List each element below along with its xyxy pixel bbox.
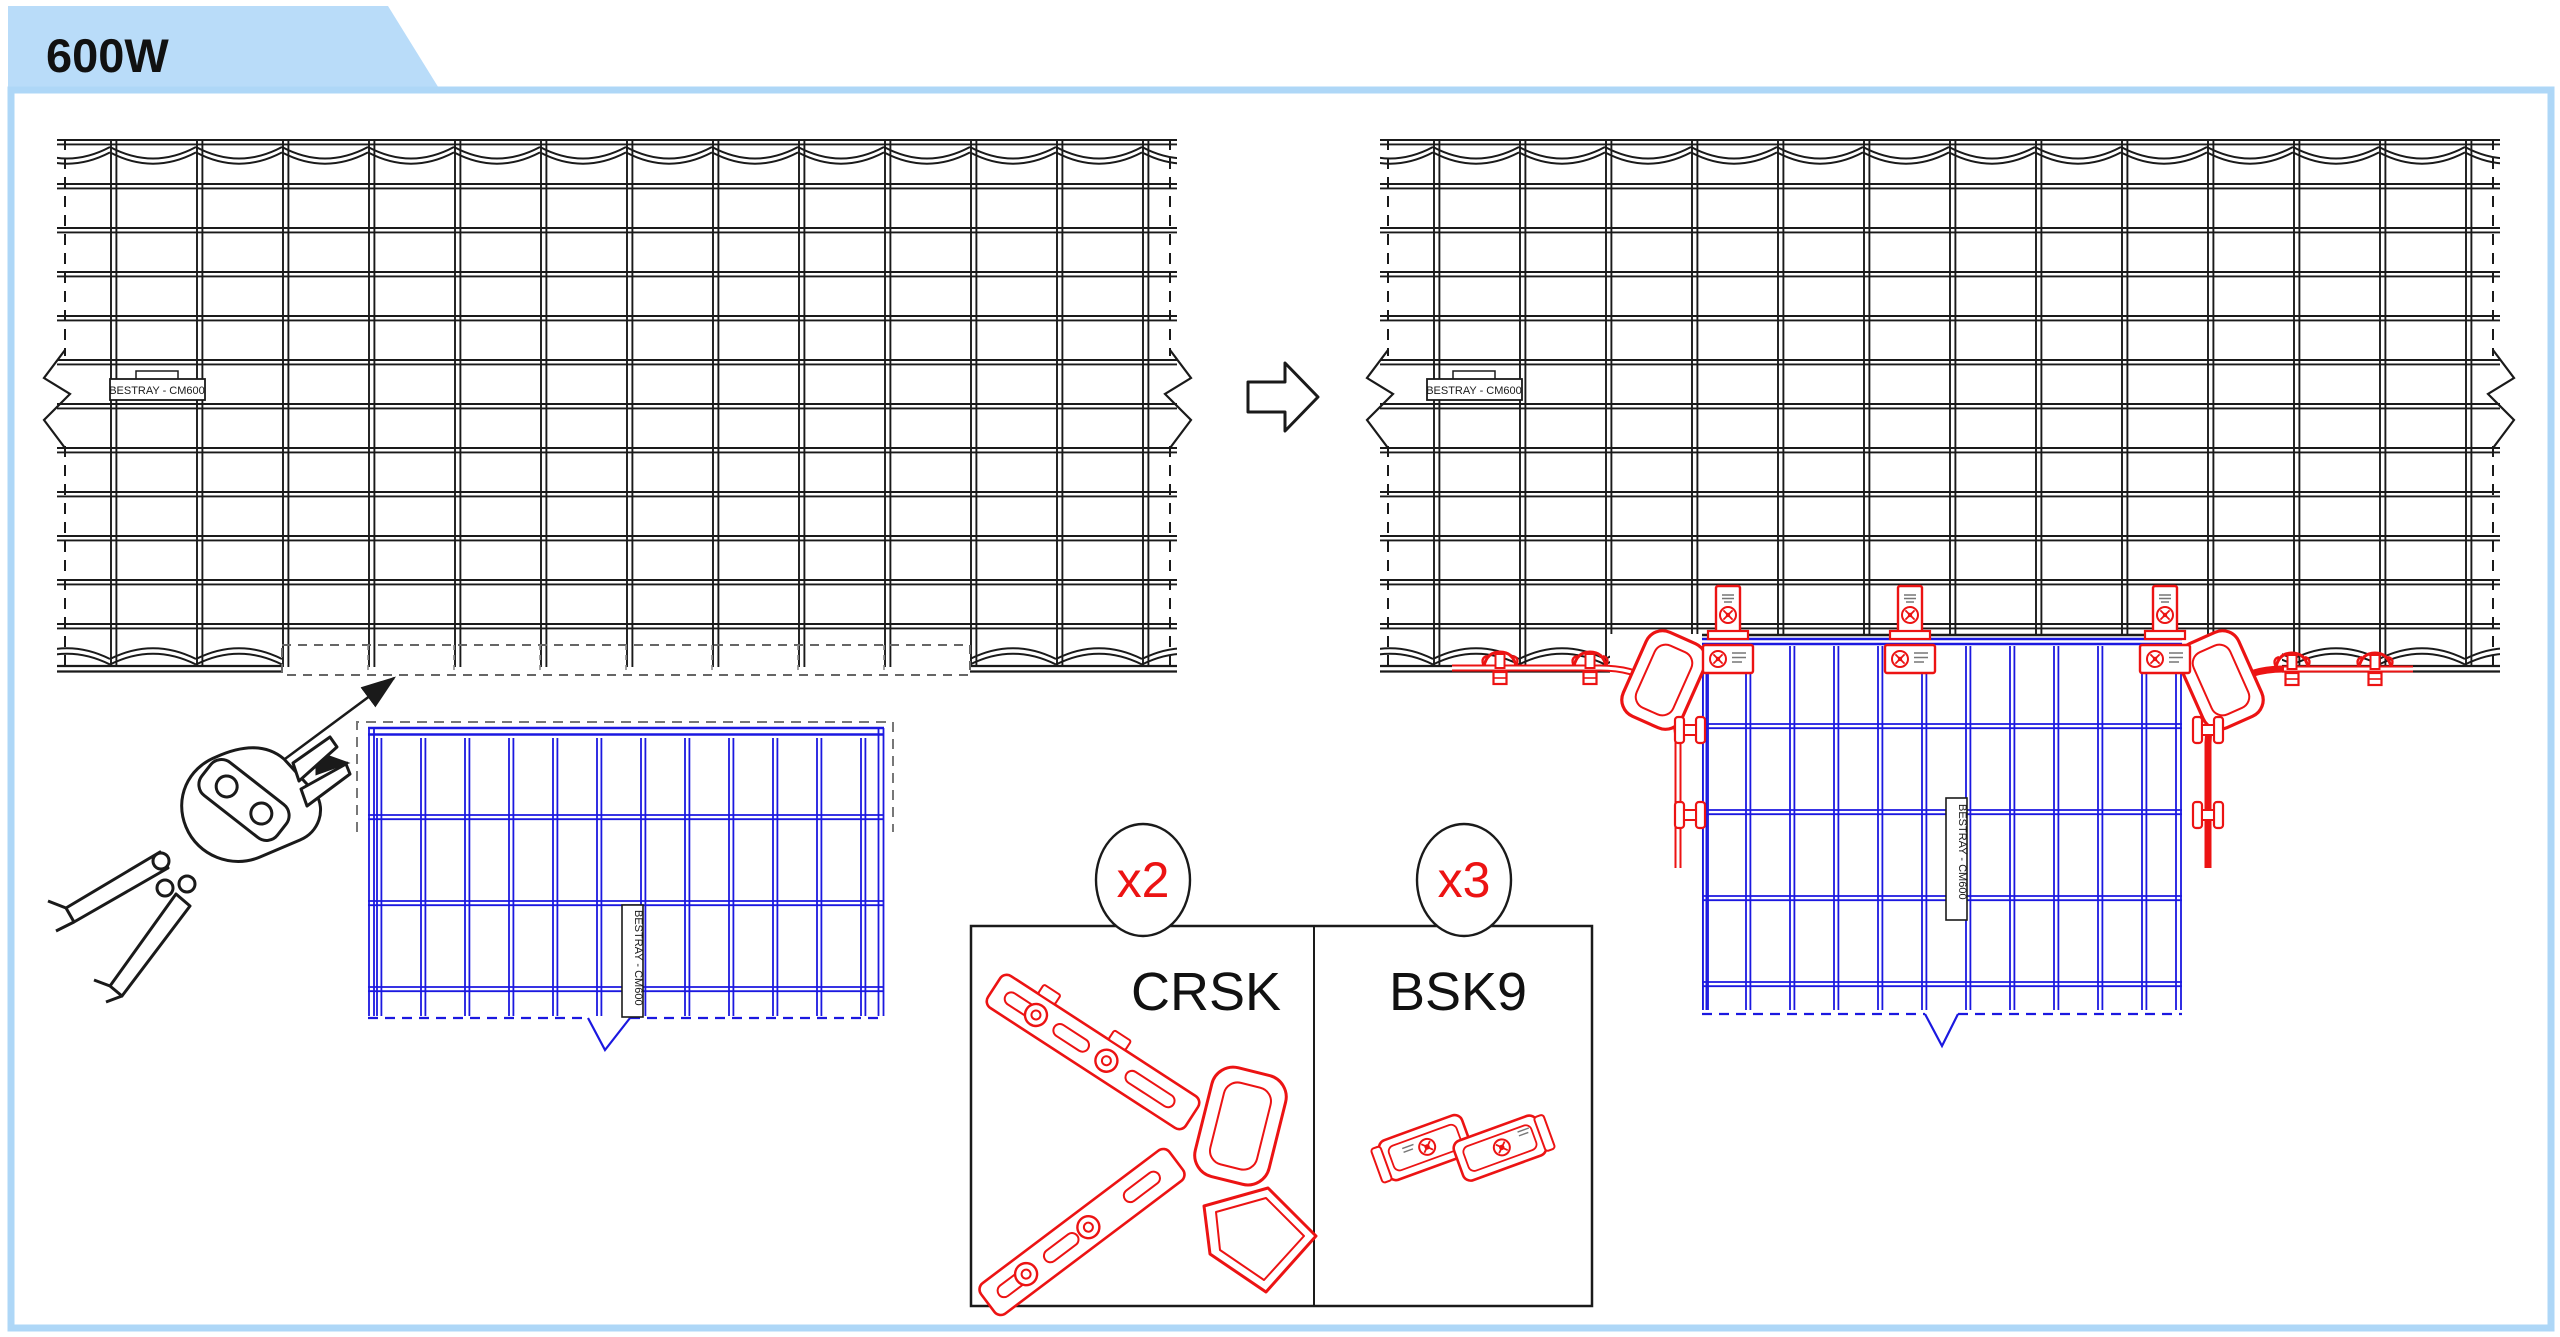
cutting-step — [48, 678, 394, 1002]
result-tray-view: BESTRAY - CM600 BESTRAY - CM600 — [1367, 139, 2514, 1046]
part-code-crsk: CRSK — [1131, 962, 1281, 1022]
parts-legend: x2 x3 CRSK BSK9 — [971, 824, 1592, 1318]
result-tray-label: BESTRAY - CM600 — [1426, 385, 1522, 397]
drop-section-label: BESTRAY - CM600 — [1956, 804, 1968, 900]
part-code-bsk9: BSK9 — [1389, 962, 1527, 1022]
instruction-sheet: 600W BESTRAY - CM600 — [0, 0, 2560, 1337]
source-tray-top-scallops — [57, 146, 1177, 172]
next-step-arrow-icon — [1248, 363, 1318, 431]
drop-break-symbol — [1925, 1014, 1958, 1046]
cut-piece-label: BESTRAY - CM600 — [632, 910, 644, 1006]
bolt-cutter-linkage-bolt1 — [153, 853, 169, 869]
cut-piece-view: BESTRAY - CM600 — [357, 722, 893, 1050]
page-title: 600W — [46, 29, 169, 82]
side-clamp — [1675, 717, 1705, 743]
cut-piece-top-rail — [368, 728, 884, 735]
drop-section: BESTRAY - CM600 — [1702, 635, 2182, 1046]
bolt-cutter-icon — [48, 737, 350, 1002]
cut-piece-break-symbol — [588, 1018, 630, 1050]
source-tray-bottom-scallops-right — [970, 645, 1177, 666]
side-clamp — [1675, 802, 1705, 828]
source-tray-mesh — [57, 139, 1177, 667]
source-tray-view: BESTRAY - CM600 — [44, 139, 1191, 675]
source-tray-label: BESTRAY - CM600 — [109, 385, 205, 397]
result-tray-top-scallops — [1380, 146, 2500, 172]
source-tray-bottom-scallops-left — [57, 645, 282, 666]
bolt-cutter-linkage-bolt2 — [157, 880, 173, 896]
bolt-cutter-linkage-bolt3 — [179, 876, 195, 892]
qty-crsk: x2 — [1117, 852, 1170, 908]
drop-mesh — [1702, 646, 2182, 1010]
bolt-cutter-handle-lower — [110, 894, 190, 996]
result-tray-mesh — [1380, 139, 2500, 667]
qty-bsk9: x3 — [1438, 852, 1491, 908]
